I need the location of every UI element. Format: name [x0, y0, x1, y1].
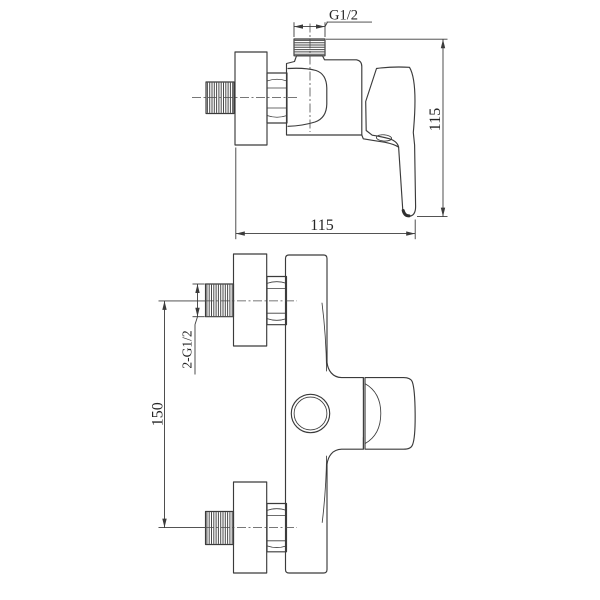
- side-lever-handle: [362, 67, 416, 216]
- arrowhead: [316, 24, 325, 28]
- dim-outlet-thread: G1/2: [294, 8, 372, 37]
- nut-chamfer-arc: [267, 546, 287, 548]
- width-dim-label: 115: [310, 217, 333, 234]
- spout-circle-outer: [291, 394, 329, 432]
- dim-inlet-thread: 2-G1/2: [180, 284, 205, 375]
- inlet-spacing-label: 150: [149, 402, 166, 426]
- arrowhead: [236, 231, 245, 235]
- dim-height: 115: [326, 39, 448, 216]
- cap-dome-arc: [365, 384, 381, 444]
- side-view: G1/2 115 115: [192, 8, 448, 240]
- arrowhead: [162, 301, 166, 310]
- nut-chamfer-arc: [267, 319, 287, 321]
- body-contour-lower: [322, 456, 326, 523]
- side-centerlines: [192, 24, 310, 133]
- nut-chamfer-arc: [267, 509, 287, 511]
- side-handle-tip: [403, 211, 409, 216]
- arrowhead: [294, 24, 303, 28]
- body-contour-upper: [322, 303, 327, 371]
- outlet-thread-size-label: G1/2: [329, 8, 358, 24]
- height-dim-label: 115: [427, 108, 444, 131]
- arrowhead: [195, 308, 199, 317]
- arrowhead: [195, 284, 199, 293]
- front-view: 2-G1/2 150: [149, 254, 415, 573]
- leader-line: [195, 317, 198, 325]
- dim-inlet-spacing: 150: [149, 301, 205, 528]
- arrowhead: [441, 208, 445, 217]
- side-handle-outline: [366, 67, 416, 216]
- front-bottom-connector: [205, 482, 297, 573]
- side-valve-body: [287, 56, 362, 135]
- shower-mixer-drawing: G1/2 115 115: [0, 0, 600, 600]
- thread-hatch: [295, 40, 325, 54]
- side-wall-plate: [235, 52, 267, 145]
- technical-drawing-canvas: G1/2 115 115: [0, 0, 600, 600]
- nut-chamfer-arc: [267, 79, 287, 81]
- front-body-outline: [286, 255, 364, 573]
- cap-outline: [365, 378, 415, 450]
- front-top-connector: [205, 254, 297, 346]
- nut-chamfer-arc: [267, 282, 287, 284]
- thread-hatch: [207, 512, 232, 544]
- front-handle-cap: [363, 378, 415, 450]
- arrowhead: [406, 231, 415, 235]
- spout-circle-inner: [294, 397, 327, 430]
- side-outlet-thread: [294, 39, 325, 56]
- top-escutcheon-plate: [234, 254, 267, 346]
- thread-hatch: [207, 285, 232, 317]
- nut-chamfer-arc: [267, 116, 287, 118]
- side-body-outline: [287, 56, 362, 135]
- dim-width: 115: [236, 148, 415, 240]
- arrowhead: [162, 519, 166, 528]
- arrowhead: [441, 39, 445, 48]
- inlet-thread-size-label: 2-G1/2: [180, 330, 195, 368]
- front-body: [286, 255, 364, 573]
